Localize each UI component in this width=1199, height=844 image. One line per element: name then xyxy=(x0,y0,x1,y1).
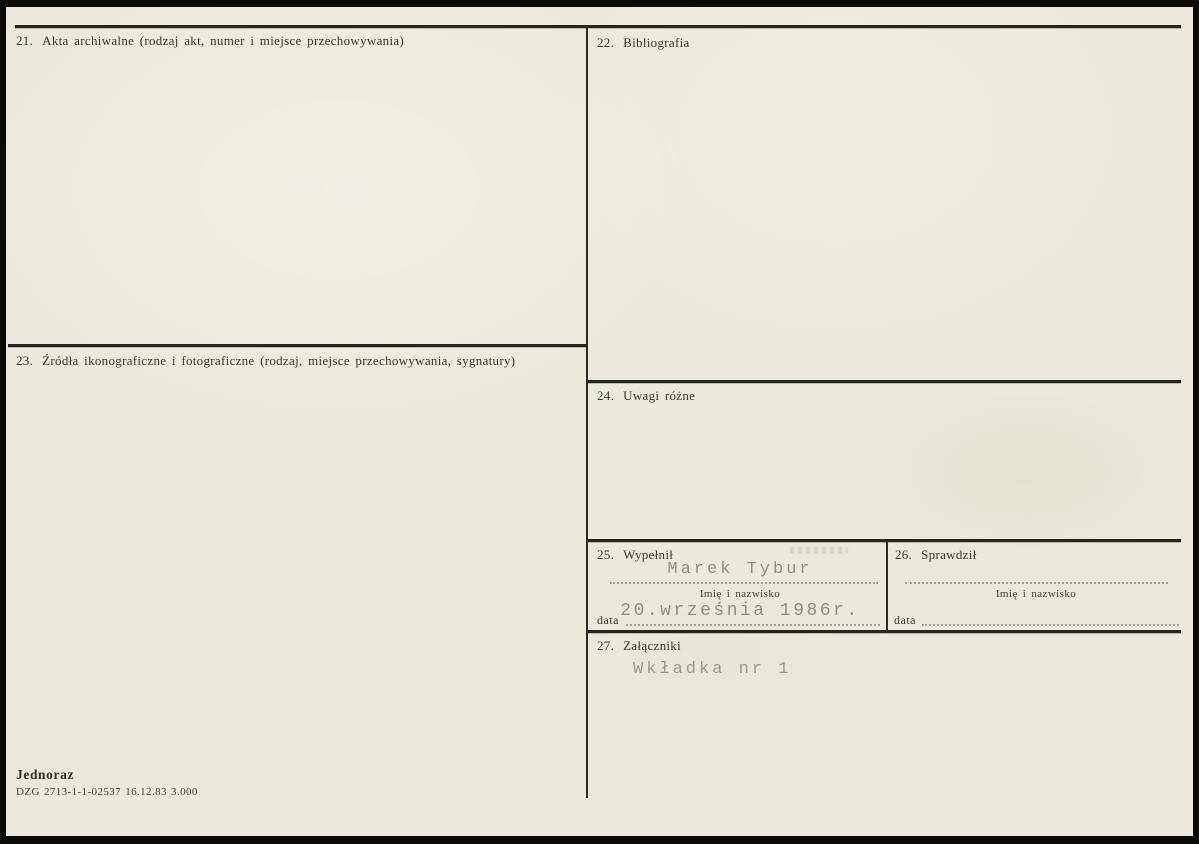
field-26-title: Sprawdził xyxy=(921,547,976,562)
wypelnil-name-line xyxy=(610,582,878,584)
typed-smudge xyxy=(790,547,848,554)
field-23-number: 23. xyxy=(16,353,33,369)
field-22-title: Bibliografia xyxy=(623,35,689,50)
field-24-label: 24.Uwagi różne xyxy=(597,388,695,404)
field-27-number: 27. xyxy=(597,638,614,654)
field-23-label: 23.Źródła ikonograficzne i fotograficzne… xyxy=(16,353,515,369)
field-22-label: 22.Bibliografia xyxy=(597,35,690,51)
wypelnil-date-label: data xyxy=(597,613,619,628)
wypelnil-date-line xyxy=(626,624,880,626)
sprawdzil-name-caption: Imię i nazwisko xyxy=(895,588,1177,600)
section-25-26-bottom-rule xyxy=(586,630,1181,633)
section-25-26-divider xyxy=(886,539,888,633)
sprawdzil-name-line xyxy=(905,582,1168,584)
field-27-title: Załączniki xyxy=(623,638,681,653)
wypelnil-name-caption: Imię i nazwisko xyxy=(600,588,880,600)
field-27-label: 27.Załączniki xyxy=(597,638,681,654)
field-26-number: 26. xyxy=(895,547,912,563)
center-vertical-divider xyxy=(586,25,588,798)
zalaczniki-value: Wkładka nr 1 xyxy=(633,660,791,679)
paper-background xyxy=(6,7,1193,836)
section-24-top-rule xyxy=(586,380,1181,383)
field-21-title: Akta archiwalne (rodzaj akt, numer i mie… xyxy=(42,33,404,48)
field-24-number: 24. xyxy=(597,388,614,404)
field-21-label: 21.Akta archiwalne (rodzaj akt, numer i … xyxy=(16,33,404,49)
wypelnil-name-value: Marek Tybur xyxy=(600,560,880,579)
print-code: DZG 2713-1-1-02537 16.12.83 3.000 xyxy=(16,786,198,798)
field-26-label: 26.Sprawdził xyxy=(895,547,977,563)
wypelnil-date-value: 20.września 1986r. xyxy=(598,601,882,621)
form-name: Jednoraz xyxy=(16,767,74,783)
sprawdzil-date-line xyxy=(922,624,1179,626)
sprawdzil-date-label: data xyxy=(894,613,916,628)
field-22-number: 22. xyxy=(597,35,614,51)
section-25-26-top-rule xyxy=(586,539,1181,542)
field-21-number: 21. xyxy=(16,33,33,49)
scanned-form-page: 21.Akta archiwalne (rodzaj akt, numer i … xyxy=(0,0,1199,844)
section-23-top-rule xyxy=(8,344,588,347)
top-rule xyxy=(15,25,1181,28)
field-23-title: Źródła ikonograficzne i fotograficzne (r… xyxy=(42,353,515,368)
field-24-title: Uwagi różne xyxy=(623,388,695,403)
